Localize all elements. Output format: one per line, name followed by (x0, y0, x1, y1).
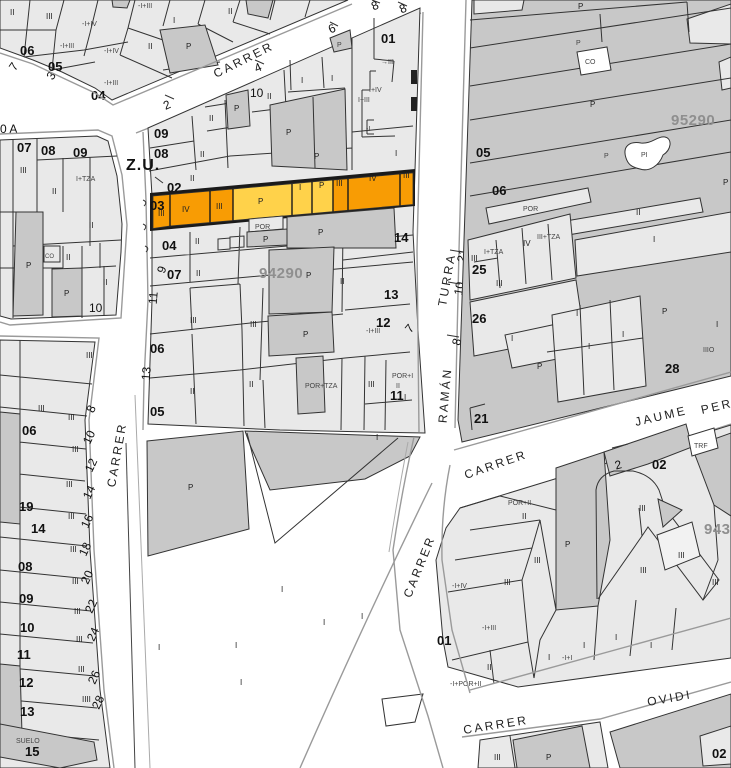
svg-text:III: III (86, 351, 93, 360)
svg-text:03: 03 (150, 198, 164, 213)
svg-text:P: P (64, 289, 69, 298)
svg-text:P: P (286, 128, 291, 137)
svg-text:14: 14 (31, 521, 46, 536)
svg-text:94290: 94290 (259, 265, 303, 282)
svg-text:I: I (583, 641, 585, 650)
svg-text:P: P (234, 104, 239, 113)
svg-text:II: II (228, 7, 232, 16)
svg-text:02: 02 (652, 457, 666, 472)
svg-text:25: 25 (472, 262, 486, 277)
svg-text:III: III (66, 480, 73, 489)
svg-text:III: III (38, 404, 45, 413)
svg-text:I: I (395, 149, 397, 158)
svg-text:POR+TZA: POR+TZA (305, 383, 338, 390)
svg-text:I+IV: I+IV (369, 87, 382, 94)
svg-text:-I+I: -I+I (562, 655, 572, 662)
svg-text:P: P (723, 178, 728, 187)
svg-text:09: 09 (19, 591, 33, 606)
svg-text:95290: 95290 (671, 112, 715, 129)
svg-text:P: P (576, 40, 581, 47)
svg-text:II: II (267, 92, 271, 101)
svg-text:P: P (565, 540, 570, 549)
svg-text:05: 05 (150, 404, 164, 419)
svg-text:POR+I: POR+I (392, 373, 413, 380)
svg-text:P: P (26, 261, 31, 270)
svg-text:I: I (281, 585, 283, 594)
svg-text:01: 01 (437, 633, 451, 648)
svg-text:P: P (188, 483, 193, 492)
svg-text:II: II (340, 277, 344, 286)
svg-text:II: II (487, 663, 491, 672)
svg-text:P: P (258, 197, 263, 206)
svg-text:28: 28 (665, 361, 679, 376)
svg-text:13: 13 (20, 704, 34, 719)
svg-text:01: 01 (381, 31, 395, 46)
svg-text:P: P (537, 362, 542, 371)
svg-text:P: P (319, 181, 324, 190)
svg-text:II: II (52, 187, 56, 196)
svg-text:19: 19 (19, 499, 33, 514)
svg-text:III: III (496, 279, 503, 288)
svg-text:08: 08 (18, 559, 32, 574)
svg-text:III: III (72, 445, 79, 454)
svg-text:I: I (650, 641, 652, 650)
svg-text:-I+IV: -I+IV (452, 583, 467, 590)
svg-text:II: II (522, 512, 526, 521)
svg-text:P: P (314, 152, 319, 161)
svg-text:-I+IV: -I+IV (104, 48, 119, 55)
svg-text:→III: →III (381, 59, 394, 66)
svg-text:11: 11 (17, 647, 31, 662)
svg-text:21: 21 (474, 411, 488, 426)
svg-text:POR: POR (523, 206, 538, 213)
svg-text:-I+III: -I+III (60, 43, 74, 50)
svg-text:15: 15 (25, 744, 39, 759)
svg-text:P: P (186, 42, 191, 51)
svg-text:06: 06 (150, 341, 164, 356)
svg-text:III: III (494, 753, 501, 762)
svg-text:I: I (361, 612, 363, 621)
svg-text:III: III (72, 577, 79, 586)
svg-text:I: I (404, 393, 406, 402)
svg-text:IIIO: IIIO (703, 347, 715, 354)
svg-text:I: I (323, 618, 325, 627)
svg-text:10: 10 (89, 301, 103, 315)
svg-text:02: 02 (712, 746, 726, 761)
svg-text:14: 14 (394, 230, 409, 245)
svg-text:IV: IV (182, 205, 190, 214)
svg-text:11: 11 (390, 388, 404, 403)
svg-text:I: I (376, 433, 378, 442)
svg-text:I: I (301, 76, 303, 85)
svg-text:PI: PI (641, 152, 648, 159)
svg-text:III: III (68, 512, 75, 521)
svg-text:06: 06 (20, 43, 34, 58)
svg-text:III: III (640, 566, 647, 575)
svg-text:II: II (209, 114, 213, 123)
svg-text:09: 09 (73, 145, 87, 160)
svg-text:I: I (235, 641, 237, 650)
svg-text:SUELO: SUELO (16, 738, 40, 745)
svg-text:13: 13 (139, 366, 154, 381)
svg-text:IV: IV (523, 239, 531, 248)
svg-text:II: II (103, 278, 107, 287)
svg-text:13: 13 (384, 287, 398, 302)
svg-text:P: P (590, 100, 595, 109)
svg-text:POR+II: POR+II (508, 500, 531, 507)
svg-text:I+TZA: I+TZA (484, 249, 504, 256)
svg-text:II: II (190, 387, 194, 396)
svg-text:-I: -I (366, 126, 370, 133)
svg-text:943: 943 (704, 521, 731, 538)
svg-text:10: 10 (250, 86, 264, 100)
svg-text:04: 04 (162, 238, 177, 253)
svg-text:05: 05 (476, 145, 490, 160)
svg-text:II: II (66, 253, 70, 262)
svg-text:III: III (712, 578, 719, 587)
svg-text:IV: IV (369, 174, 377, 183)
svg-text:I: I (588, 342, 590, 351)
svg-text:P: P (303, 330, 308, 339)
svg-text:III: III (250, 320, 257, 329)
svg-text:III: III (504, 578, 511, 587)
svg-text:I: I (615, 633, 617, 642)
svg-text:II: II (190, 174, 194, 183)
svg-text:CO: CO (585, 59, 596, 66)
svg-text:I: I (576, 309, 578, 318)
svg-text:III: III (216, 202, 223, 211)
svg-text:III: III (678, 551, 685, 560)
svg-text:12: 12 (19, 675, 33, 690)
svg-text:III: III (534, 556, 541, 565)
svg-text:I: I (173, 16, 175, 25)
svg-text:TRF: TRF (694, 443, 708, 450)
svg-text:-I+III: -I+III (104, 80, 118, 87)
svg-text:III: III (76, 635, 83, 644)
svg-text:II: II (200, 150, 204, 159)
svg-text:P: P (662, 307, 667, 316)
svg-text:I: I (511, 334, 513, 343)
svg-text:I: I (622, 330, 624, 339)
svg-text:POR: POR (255, 224, 270, 231)
svg-text:P: P (263, 235, 268, 244)
svg-text:II: II (196, 269, 200, 278)
svg-text:07: 07 (17, 140, 31, 155)
svg-text:P: P (337, 42, 342, 49)
svg-text:III: III (78, 665, 85, 674)
svg-text:06: 06 (22, 423, 36, 438)
svg-text:I: I (653, 235, 655, 244)
svg-text:III: III (74, 607, 81, 616)
svg-text:-I+POR+II: -I+POR+II (450, 681, 482, 688)
svg-text:I: I (158, 643, 160, 652)
svg-text:P: P (578, 2, 583, 11)
svg-text:I: I (331, 74, 333, 83)
svg-text:09: 09 (154, 126, 168, 141)
svg-text:-I+III: -I+III (366, 328, 380, 335)
svg-text:06: 06 (492, 183, 506, 198)
svg-text:III: III (46, 12, 53, 21)
svg-text:P: P (604, 153, 609, 160)
svg-text:II: II (89, 221, 93, 230)
svg-text:I: I (716, 320, 718, 329)
svg-text:III: III (336, 179, 343, 188)
svg-text:I+III: I+III (358, 97, 370, 104)
svg-text:10: 10 (20, 620, 34, 635)
svg-text:II: II (195, 237, 199, 246)
svg-text:CO: CO (45, 254, 54, 260)
svg-text:III: III (639, 504, 646, 513)
svg-text:11: 11 (146, 291, 161, 305)
svg-text:P: P (546, 753, 551, 762)
svg-text:-I+IV: -I+IV (82, 21, 97, 28)
svg-text:P: P (306, 271, 311, 280)
svg-text:-I+III: -I+III (482, 625, 496, 632)
svg-text:II: II (636, 208, 640, 217)
svg-text:Z.U.: Z.U. (126, 157, 160, 174)
svg-text:III+TZA: III+TZA (537, 234, 560, 241)
svg-text:III: III (68, 413, 75, 422)
svg-text:I+TZA: I+TZA (76, 176, 96, 183)
svg-text:08: 08 (41, 143, 55, 158)
svg-text:II: II (148, 42, 152, 51)
svg-text:III: III (190, 316, 197, 325)
svg-text:I: I (548, 653, 550, 662)
svg-text:P: P (318, 228, 323, 237)
svg-text:-I+III: -I+III (138, 3, 152, 10)
svg-text:I: I (240, 678, 242, 687)
svg-text:III: III (368, 380, 375, 389)
svg-text:III: III (403, 171, 410, 180)
svg-text:II: II (249, 380, 253, 389)
svg-text:I: I (299, 183, 301, 192)
svg-text:II: II (10, 8, 14, 17)
svg-text:26: 26 (472, 311, 486, 326)
svg-text:III: III (20, 166, 27, 175)
